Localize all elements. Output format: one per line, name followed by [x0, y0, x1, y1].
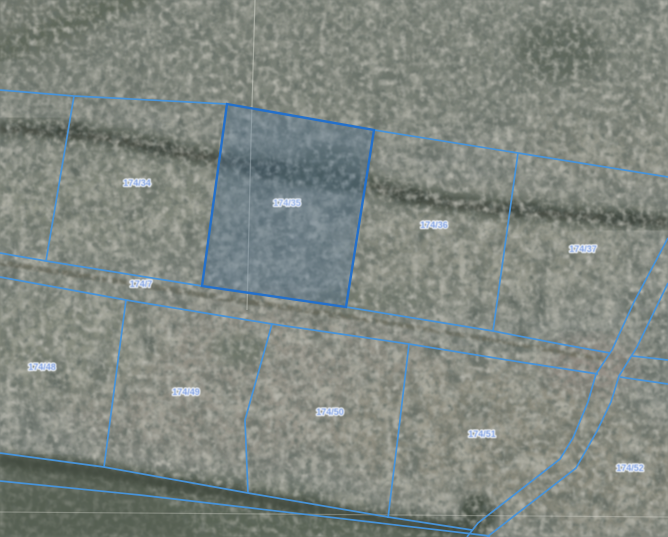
svg-text:174/36: 174/36 [420, 220, 448, 230]
svg-text:174/49: 174/49 [172, 387, 200, 397]
svg-text:174/34: 174/34 [123, 178, 151, 188]
svg-text:174/35: 174/35 [273, 198, 301, 208]
svg-text:174/7: 174/7 [130, 279, 153, 289]
svg-text:174/48: 174/48 [28, 362, 56, 372]
svg-text:174/51: 174/51 [468, 429, 496, 439]
svg-text:174/52: 174/52 [616, 463, 644, 473]
svg-text:174/37: 174/37 [569, 244, 597, 254]
svg-text:174/50: 174/50 [316, 407, 344, 417]
